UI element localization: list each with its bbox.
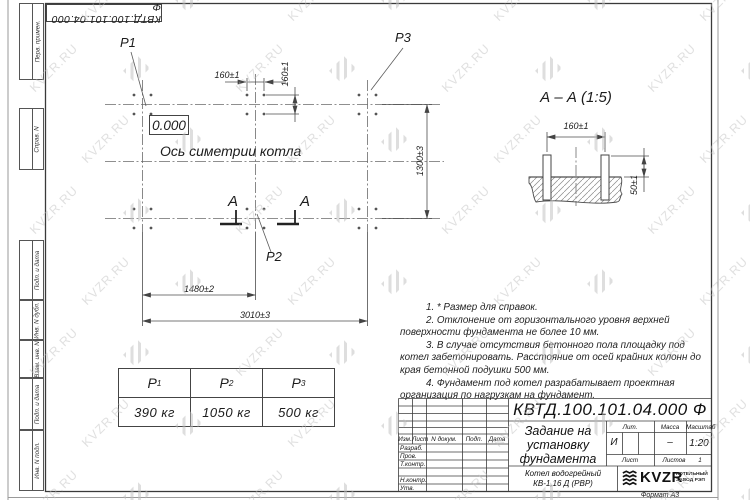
row-label-utv: Утв. [400, 485, 414, 492]
col-header-izm: Изм. [398, 436, 412, 443]
load-p1-value: 390 кг [119, 398, 191, 426]
load-table-header-p3: Р3 [263, 369, 334, 397]
scale-header: Масштаб [686, 424, 712, 431]
margin-label: Подп. и дата [34, 384, 41, 423]
level-mark-box: 0.000 [149, 115, 189, 135]
margin-cell-inv-podl: Инв. N подл. [19, 430, 44, 491]
margin-label: Подп. и дата [34, 250, 41, 289]
margin-cell-podp-data-1: Подп. и дата [19, 240, 44, 300]
margin-cell-inv-dubl: Инв. N дубл. [19, 300, 44, 340]
col-header-list: Лист [412, 436, 426, 443]
margin-cell-podp-data-2: Подп. и дата [19, 378, 44, 430]
kvzr-logo-icon [622, 470, 639, 487]
load-p3-value: 500 кг [263, 398, 334, 426]
load-table-value-row: 390 кг 1050 кг 500 кг [119, 398, 334, 426]
doc-title-line1: Задание на [511, 424, 605, 438]
title-block-designation: КВТД.100.101.04.000 Ф [512, 400, 708, 420]
section-view-title: А – А (1:5) [521, 89, 631, 106]
note-1: 1. * Размер для справок. [400, 302, 712, 315]
dim-1480: 1480±2 [169, 284, 229, 294]
sheets-value: 1 [690, 457, 710, 464]
margin-cell-vzam-inv: Взам. инв. N [19, 340, 44, 378]
doc-title-line2: установку [511, 438, 605, 452]
load-p2-value: 1050 кг [191, 398, 263, 426]
scale-value: 1:20 [686, 438, 712, 449]
company-name-line2: ЗАВОД РЭП [676, 478, 708, 484]
margin-label: Перв. примен. [34, 21, 41, 63]
load-point-p2-label: Р2 [266, 249, 282, 264]
margin-label: Инв. N дубл. [34, 302, 41, 338]
doc-title: Задание на установку фундамента [511, 424, 605, 466]
load-point-p1-label: Р1 [120, 35, 136, 50]
doc-title-line3: фундамента [511, 452, 605, 466]
top-designation-box: КВТД.100.101.04.000 Ф [46, 4, 162, 22]
sheets-label: Листов [656, 457, 692, 464]
col-header-data: Дата [486, 436, 508, 443]
sheet-label: Лист [606, 457, 654, 464]
drawing-sheet: Перв. примен. Справ. N Подп. и дата Инв.… [0, 0, 750, 500]
dim-160-side: 160±1 [279, 54, 291, 94]
product-name: Котел водогрейный КВ-1,16 Д (РВР) [511, 469, 615, 488]
row-label-tkontr: Т.контр. [400, 461, 425, 468]
row-label-prov: Пров. [400, 453, 417, 460]
load-table-header-p2: Р2 [191, 369, 263, 397]
section-letter-right: А [290, 193, 320, 210]
margin-label: Взам. инв. N [34, 341, 41, 378]
mass-header: Масса [654, 424, 686, 431]
note-4: 4. Фундамент под котел разрабатывает про… [400, 378, 712, 403]
dim-160-top: 160±1 [204, 70, 250, 80]
section-letter-left: А [218, 193, 248, 210]
col-header-docum: N докум. [426, 436, 462, 443]
note-3: 3. В случае отсутствия бетонного пола пл… [400, 340, 712, 378]
load-table: Р1 Р2 Р3 390 кг 1050 кг 500 кг [118, 368, 335, 427]
level-mark: 0.000 [152, 118, 186, 133]
load-table-header-p1: Р1 [119, 369, 191, 397]
margin-label: Справ. N [34, 126, 41, 152]
note-2: 2. Отклонение от горизонтального уровня … [400, 315, 712, 340]
col-header-podp: Подп. [462, 436, 486, 443]
load-point-p3-label: Р3 [395, 30, 411, 45]
margin-label: Инв. N подл. [34, 442, 41, 479]
product-name-line1: Котел водогрейный [511, 469, 615, 479]
margin-cell-perv-primen: Перв. примен. [19, 3, 44, 80]
dim-3010: 3010±3 [225, 310, 285, 320]
symmetry-axis-label: Ось симетрии котла [160, 143, 301, 159]
dim-1300: 1300±3 [414, 141, 426, 181]
section-dim-50: 50±1 [628, 165, 640, 205]
row-label-razrab: Разраб. [400, 445, 423, 452]
mass-value: – [654, 437, 686, 448]
section-dim-160: 160±1 [553, 121, 599, 131]
margin-cell-sprav-n: Справ. N [19, 108, 44, 170]
row-label-nkontr: Н.контр. [400, 477, 427, 484]
top-designation-text: КВТД.100.101.04.000 Ф [47, 1, 161, 25]
product-name-line2: КВ-1,16 Д (РВР) [511, 479, 615, 489]
notes-block: 1. * Размер для справок. 2. Отклонение о… [400, 302, 712, 403]
lit-value: И [606, 437, 622, 448]
company-name: КОТЕЛЬНЫЙ ЗАВОД РЭП [676, 472, 708, 484]
lit-header: Лит. [606, 424, 654, 431]
section-view-lines [529, 155, 622, 203]
load-table-header-row: Р1 Р2 Р3 [119, 369, 334, 398]
format-label: Формат А3 [615, 492, 705, 499]
